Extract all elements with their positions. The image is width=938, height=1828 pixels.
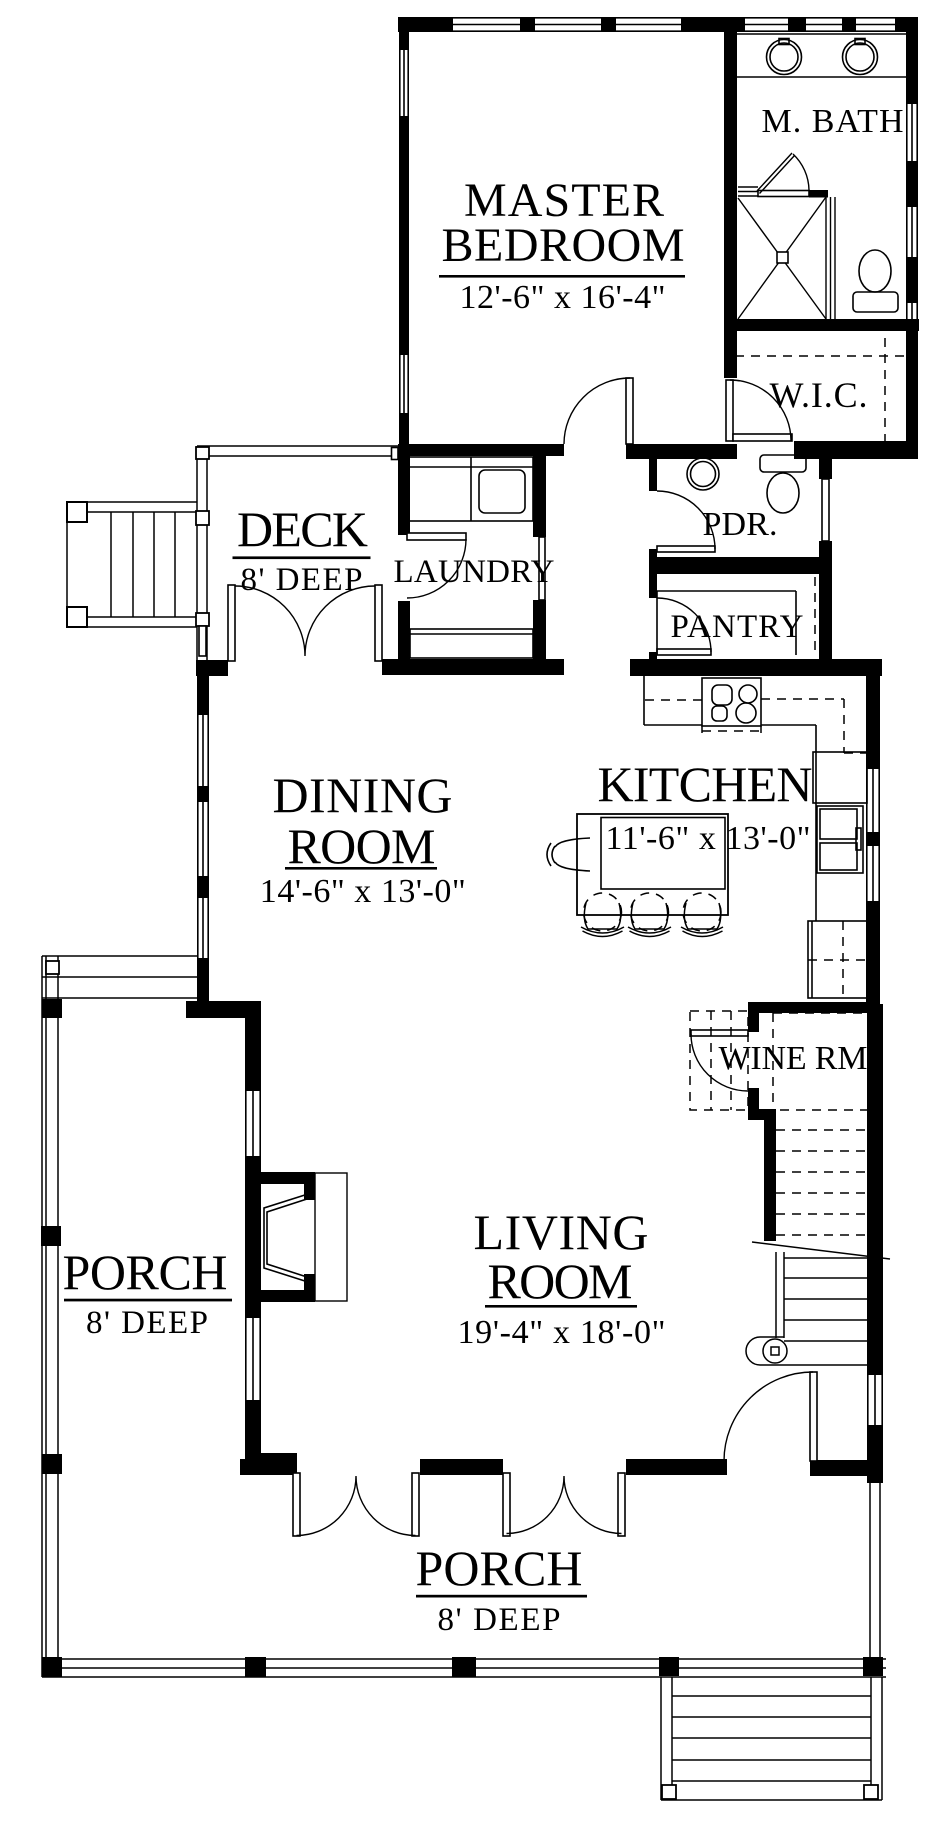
svg-text:LAUNDRY: LAUNDRY <box>394 554 555 590</box>
svg-text:PORCH: PORCH <box>63 1244 228 1300</box>
svg-text:M. BATH: M. BATH <box>762 103 904 140</box>
svg-text:W.I.C.: W.I.C. <box>770 375 868 415</box>
svg-text:8' DEEP: 8' DEEP <box>86 1305 208 1341</box>
svg-text:14'-6" x 13'-0": 14'-6" x 13'-0" <box>260 873 466 910</box>
svg-text:ROOM: ROOM <box>288 818 436 874</box>
svg-text:WINE RM: WINE RM <box>719 1040 868 1077</box>
svg-text:8' DEEP: 8' DEEP <box>438 1602 561 1638</box>
svg-text:12'-6" x 16'-4": 12'-6" x 16'-4" <box>460 279 666 316</box>
svg-text:11'-6" x 13'-0": 11'-6" x 13'-0" <box>606 820 811 857</box>
svg-text:PORCH: PORCH <box>416 1540 583 1596</box>
svg-text:ROOM: ROOM <box>488 1253 633 1309</box>
svg-text:8' DEEP: 8' DEEP <box>241 562 363 598</box>
svg-text:BEDROOM: BEDROOM <box>442 219 685 272</box>
svg-text:KITCHEN: KITCHEN <box>598 756 813 812</box>
svg-text:PDR.: PDR. <box>703 506 778 543</box>
svg-text:DECK: DECK <box>237 501 368 557</box>
svg-text:19'-4" x 18'-0": 19'-4" x 18'-0" <box>458 1314 666 1351</box>
svg-text:PANTRY: PANTRY <box>671 609 804 645</box>
svg-text:DINING: DINING <box>273 767 453 823</box>
svg-text:LIVING: LIVING <box>474 1204 649 1260</box>
